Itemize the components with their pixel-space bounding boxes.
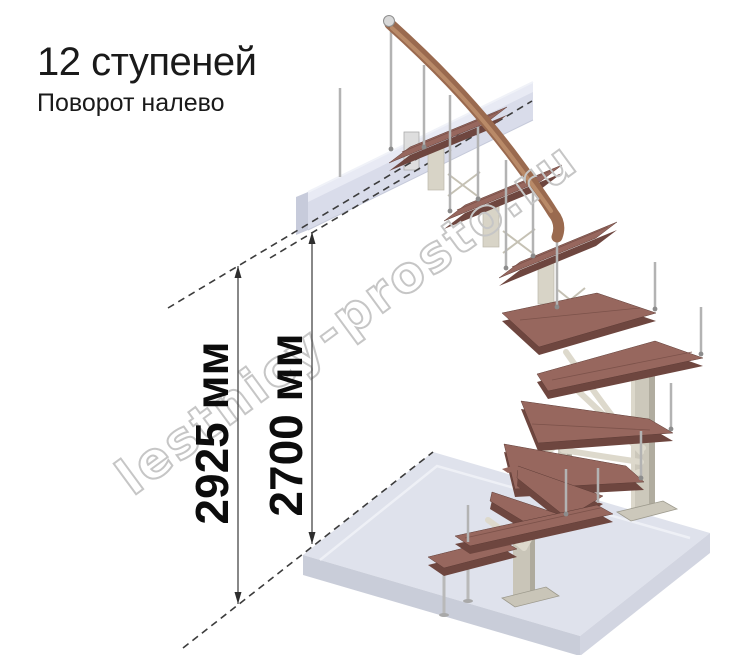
handrail-end-cap: [384, 16, 395, 27]
page-title: 12 ступеней: [37, 40, 256, 84]
title-block: 12 ступеней Поворот налево: [37, 40, 256, 118]
dimension-label-2700: 2700 мм: [260, 333, 312, 516]
arrow-up-icon: [309, 232, 316, 244]
dimension-right-2700: 2700 мм: [260, 232, 316, 544]
tread: [502, 293, 656, 355]
tread: [537, 341, 703, 399]
landing-end-face: [296, 192, 308, 235]
central-column: [617, 368, 677, 521]
dimension-label-2925: 2925 мм: [186, 341, 238, 524]
page-subtitle: Поворот налево: [37, 88, 256, 118]
staircase-diagram-page: lestnicy-prosto.ru 2925 мм 2700 мм 12 ст…: [0, 0, 743, 655]
arrow-down-icon: [309, 532, 316, 544]
dimension-left-2925: 2925 мм: [186, 266, 242, 604]
